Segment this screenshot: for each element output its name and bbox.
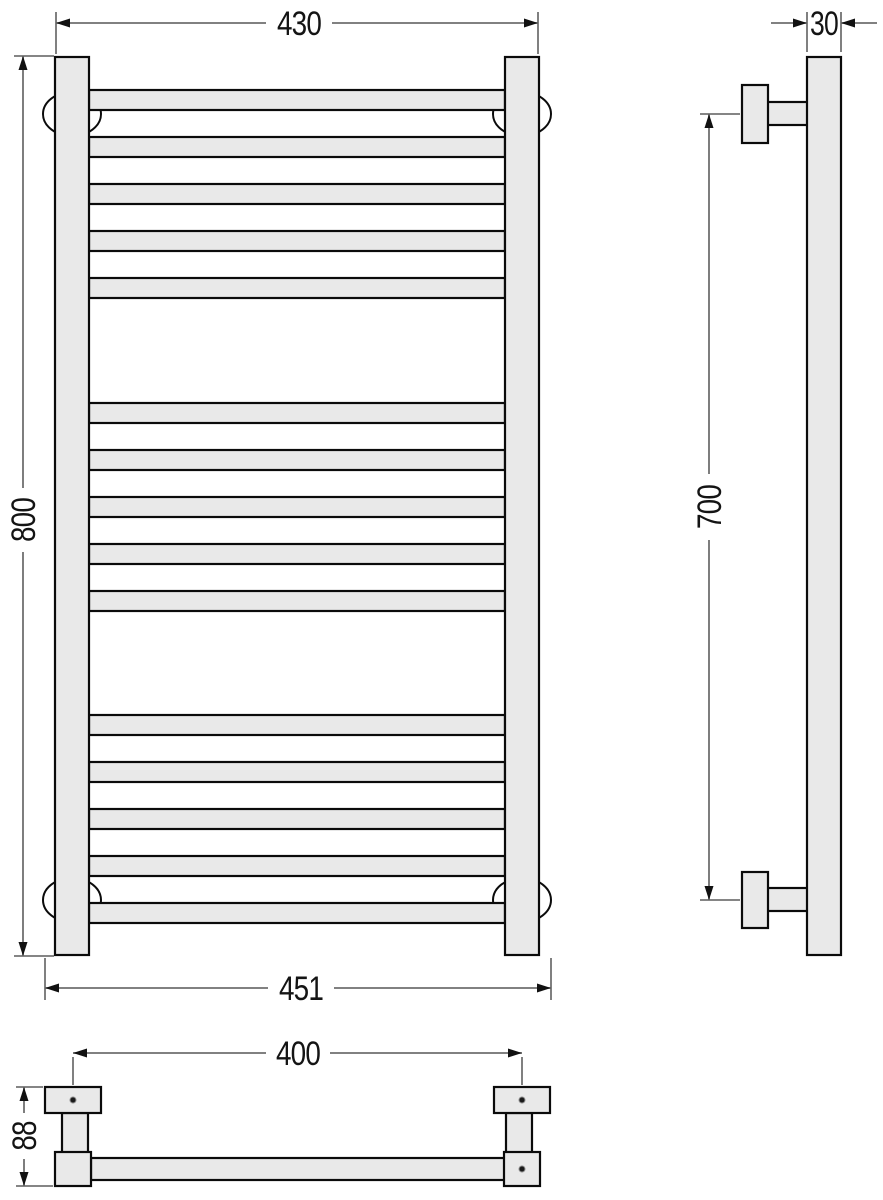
dim-label-430: 430 xyxy=(277,4,322,42)
dim-front-width-top: 430 xyxy=(56,4,538,54)
rungs xyxy=(89,90,505,923)
dim-label-88: 88 xyxy=(5,1121,43,1150)
bracket-stem-right xyxy=(506,1113,532,1154)
technical-drawing: 430 800 451 xyxy=(0,0,883,1200)
arrowhead xyxy=(793,19,807,28)
rung xyxy=(89,450,505,470)
screw-hole xyxy=(519,1097,525,1103)
rung xyxy=(89,856,505,876)
arrowhead xyxy=(537,984,551,993)
rung xyxy=(89,591,505,611)
post-section-left xyxy=(55,1152,91,1186)
plan-view: 400 88 xyxy=(5,1034,550,1186)
dim-label-700: 700 xyxy=(690,484,728,529)
rung xyxy=(89,762,505,782)
dim-side-bracket-spacing: 700 xyxy=(690,114,740,900)
side-post xyxy=(807,57,841,955)
bracket-stem-top xyxy=(764,102,808,125)
bracket-plate-top xyxy=(742,85,768,143)
arrowhead xyxy=(73,1049,87,1058)
rung xyxy=(89,278,505,298)
dim-front-height: 800 xyxy=(4,56,54,956)
rung xyxy=(89,715,505,735)
screw-hole xyxy=(70,1097,76,1103)
dim-front-width-bottom: 451 xyxy=(45,958,551,1008)
front-view: 430 800 451 xyxy=(4,4,551,1007)
arrowhead xyxy=(56,19,70,28)
dim-label-400: 400 xyxy=(276,1034,321,1072)
arrowhead xyxy=(19,56,28,70)
dim-label-30: 30 xyxy=(810,5,838,43)
arrowhead xyxy=(705,886,714,900)
bracket-stem-bottom xyxy=(764,888,808,911)
post-left xyxy=(55,57,89,955)
bracket-stem-left xyxy=(62,1113,88,1154)
arrowhead xyxy=(841,19,855,28)
dim-label-451: 451 xyxy=(279,969,323,1007)
dim-label-800: 800 xyxy=(4,497,42,542)
rung xyxy=(89,809,505,829)
rung xyxy=(89,544,505,564)
bracket-plate-bottom xyxy=(742,872,768,928)
side-view: 30 700 xyxy=(690,5,877,955)
arrowhead xyxy=(20,1172,29,1186)
rung xyxy=(89,497,505,517)
dim-plan-hole-spacing: 400 xyxy=(73,1034,522,1085)
arrowhead xyxy=(705,114,714,128)
arrowhead xyxy=(45,984,59,993)
post-right xyxy=(505,57,539,955)
arrowhead xyxy=(19,942,28,956)
rung xyxy=(89,403,505,423)
arrowhead xyxy=(20,1087,29,1101)
rung xyxy=(89,137,505,157)
arrowhead xyxy=(524,19,538,28)
dim-side-depth: 30 xyxy=(771,5,877,52)
arrowhead xyxy=(508,1049,522,1058)
rung xyxy=(89,903,505,923)
rung xyxy=(89,90,505,110)
rung xyxy=(89,184,505,204)
rung xyxy=(89,231,505,251)
plan-rung-bar xyxy=(91,1158,505,1180)
screw-hole xyxy=(519,1166,525,1172)
drawing-canvas: 430 800 451 xyxy=(0,0,883,1200)
